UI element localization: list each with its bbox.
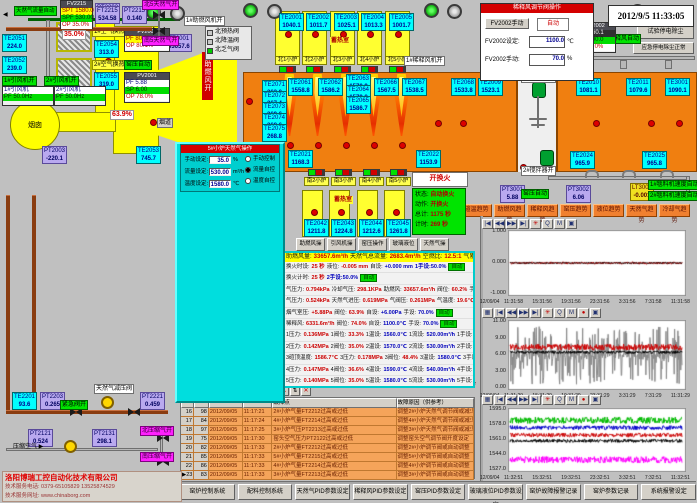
instrument-value: 1079.6 [628,87,649,95]
trend-button[interactable]: 天然气趋势 [626,204,657,217]
sensor-dot [460,120,467,127]
popup-title: 稀释风调节阀操作 [481,4,593,13]
instrument-value: 1081.1 [578,87,599,95]
instrument-tag: PT2121 [30,431,51,437]
stirrer-1-blade [529,118,547,120]
xtick: 3:31:56 [619,299,636,305]
instrument-readout: TE2075268.8 [262,124,287,142]
instrument-readout: TE20611558.8 [288,78,313,96]
chart-toolbar-icon[interactable]: ▦ [482,395,493,405]
ytick: 3.00 [480,368,506,374]
instrument-value: 5.88 [502,194,523,202]
trend-button[interactable]: 冷却气趋势 [659,204,690,217]
ytick: 1561.0 [478,436,506,442]
sensor-dot [343,142,350,149]
led-green [336,170,342,175]
operation-button[interactable]: 窑压操作 [358,238,387,251]
process-label: 紧急阀开 [60,400,88,410]
instrument-tag: TE2075 [264,126,285,132]
trend-button[interactable]: 助燃风趋势 [494,204,525,217]
temperature-trend-chart [508,408,686,472]
instrument-tag: TE2025 [644,153,665,159]
sensor-dot [246,98,253,105]
process-label: 63.9% [110,110,134,120]
alarm-row[interactable]: 21 85 2012/09/05 11:17:33 5#小炉气量FT2215过高… [181,453,474,462]
loop-fv-panel: FV2215 SPT 1580.0 SPF 530.00 OP 35.0% [60,0,93,29]
chart-toolbar-icon[interactable]: M [566,395,577,405]
sensor-dot [393,209,400,216]
temp-set-input[interactable]: 1580.0 [209,180,231,188]
pipe-nozzle [665,60,672,69]
instrument-value: 965.9 [572,160,593,168]
pipe-hanger [585,170,599,178]
instrument-tag: TE2004 [363,15,384,21]
legend-label: 北预热阀 [215,28,239,37]
burner-label: 北1小炉 [275,56,300,65]
company-web[interactable]: 技术服务网址: www.chinaborg.com [5,492,179,501]
alarm-row[interactable]: 17 84 2012/09/05 11:17:24 4#小炉气量FT2214过高… [181,417,474,426]
flow-set-input[interactable]: 530.00 [209,168,231,176]
ytick: 0.00 [480,384,506,390]
process-label: 压缩空气 ▶ [12,443,44,451]
section-title: 5#小炉天然气操作 [181,145,279,153]
instrument-tag: TE3001 [667,80,688,86]
fault-reason: 调整3#小炉天然气调节阀或减少量设定 [397,426,474,435]
instrument-tag: TE2053 [138,148,159,154]
status-value: 开换火 [430,202,448,208]
legend-item: 北预热阀 [207,28,250,37]
fv2002-man-input[interactable]: 70.0 [529,54,565,66]
instrument-value: 0.459 [142,401,163,409]
xtick: 11:31:29 [671,393,690,399]
fault-point-header: 故障点 [272,398,396,408]
fv2002-mode-value: 自动 [537,18,569,31]
ytick: 6.00 [480,351,506,357]
status-row: 状态: 自动换火 [415,190,463,200]
status-row: 总计: 1175 秒 [415,210,463,220]
fault-reason: 调整2#小炉调节阀或自动调整 [397,444,474,453]
instrument-readout: TE2052239.0 [2,56,27,74]
pipe-hanger [660,170,674,178]
instrument-tag: TE2064 [348,87,369,93]
ytick: 11.00 [480,318,506,324]
alarm-row[interactable]: 19 75 2012/09/05 11:17:30 窑头空气压力PT2122过高… [181,435,474,444]
instrument-tag: TE2043 [333,221,354,227]
burner-status-leds [390,169,407,176]
ytick: 1527.0 [478,466,506,472]
gas-bottom-pipe [6,410,168,414]
instrument-value: 1558.8 [290,87,311,95]
fv2002-set-input[interactable]: 1100.0 [529,36,565,48]
instrument-value: 6.06 [568,194,589,202]
instrument-value: -220.1 [44,155,65,163]
chart-toolbar-icon[interactable]: ▶▶ [518,395,529,405]
fan-icon [243,3,258,18]
instrument-readout: PT2003-220.1 [42,146,67,164]
instrument-tag: TE2003 [336,15,357,21]
nav-button[interactable]: 系统报警设定 [641,484,696,500]
gas-loop: 天然气流量自动 FV2215 SPT 1580.0 SPF 530.00 OP … [0,0,178,43]
parameter-rows: 换火时设:25 秒液位:-0.005 mm自设:+0.000 mm1手设:50.… [285,262,473,387]
sensor-dot [285,31,292,38]
company-info: 洛阳博瑞工控自动化技术有限公司 技术服务电话: 0379-65105829 13… [2,471,182,502]
instrument-readout: PT2131298.1 [92,429,117,447]
fault-point: 4#小炉气量FT2214过高或过低 [272,462,396,471]
instrument-readout: TE30011090.1 [665,78,690,96]
led-red [287,67,293,72]
alarm-row[interactable]: ▶23 83 2012/09/05 11:17:33 3#小炉气量FT2213过… [181,471,474,480]
fault-point: 3#小炉气量FT2213过高或过低 [272,471,396,480]
fault-point: 3#小炉气压PT2213过高或过低 [272,426,396,435]
sensor-dot [311,209,318,216]
pipe-nozzle [620,60,627,69]
pipe-hanger [622,170,636,178]
instrument-readout: TE20011040.1 [279,13,304,31]
burner-north: 北3小炉 [330,56,355,73]
process-label: 蓄热室 [333,196,353,204]
instrument-tag: TE2024 [572,153,593,159]
loop-north-valve-label: 北5天然气开 [142,0,179,10]
flow-unit: m³/h [233,168,244,176]
burner-status-leds [335,169,352,176]
chart-toolbar-icon[interactable]: Q [554,395,565,405]
process-label: 窑压自动 [521,189,549,199]
fv2002-man-label: FV2002手动: [485,56,520,65]
trend-button[interactable]: 稀释风趋势 [527,204,558,217]
fv2002-man-unit: % [567,56,572,62]
flow-set-label: 流量设定: [182,168,208,176]
chart1-date: 12/09/04 [480,299,499,305]
instrument-readout: TE20031025.1 [334,13,359,31]
nav-button[interactable]: 窑炉参数记录 [584,484,639,500]
nav-button[interactable]: 玻璃液位PID参数设定 [468,484,523,500]
fv2002-manual-button[interactable]: FV2002手动 [485,18,529,29]
manual-set-label: 手动设定: [182,156,208,164]
nav-button[interactable]: 窑压PID参数设定 [411,484,466,500]
chart-toolbar-icon[interactable]: |◀ [494,395,505,405]
legend-swatch [207,39,213,45]
sensor-dot [367,31,374,38]
chart-toolbar-icon[interactable]: ▣ [590,395,601,405]
chart-toolbar-icon[interactable]: ▣ [590,308,601,318]
xtick: 11:31:58 [504,299,523,305]
xtick: 3:32:51 [619,475,636,481]
ytick: 1578.0 [478,421,506,427]
xtick: 15:32:51 [532,475,551,481]
burner-south: 南5小炉 [386,169,411,186]
chart-toolbar-icon[interactable]: ✳ [542,395,553,405]
trend-button[interactable]: 液位趋势 [593,204,624,217]
instrument-tag: PT2131 [94,431,115,437]
fault-reason: 调整4#小炉调节阀或自动调整 [397,462,474,471]
led-red [369,67,375,72]
led-green [280,67,286,72]
instrument-tag: TE2021 [290,152,311,158]
led-green [391,170,397,175]
instrument-readout: TE20021011.7 [306,13,331,31]
burner-status-leds [334,66,351,73]
chart-toolbar-icon[interactable]: M [566,308,577,318]
fv2002-set-unit: ℃ [567,38,574,45]
led-red [371,170,377,175]
ytick: 1595.0 [478,406,506,412]
fv2002-set-label: FV2002设定: [485,38,520,47]
instrument-tag: TE2061 [290,80,311,86]
process-label: 1#助燃风机开 [184,16,225,26]
ytick: 0.000 [480,259,506,265]
instrument-value: 1533.8 [453,87,474,95]
sensor-dot [338,209,345,216]
sensor-dot [371,142,378,149]
sensor-dot [150,119,157,126]
status-value: 1175 秒 [430,212,451,218]
parameter-panel: 助燃风量:33657.6m³/h天然气总流量:2683.4m³/h空燃比:12.… [283,251,475,388]
xtick: 11:32:51 [504,475,523,481]
burner-south: 南4小炉 [359,169,384,186]
instrument-value: 745.7 [138,155,159,163]
alarm-row[interactable]: 22 86 2012/09/05 11:17:33 4#小炉气量FT2214过高… [181,462,474,471]
operation-button[interactable]: 助燃风操作 [296,238,325,251]
instrument-tag: TE2045 [388,221,409,227]
temp-unit: ℃ [233,180,239,188]
led-red [343,170,349,175]
instrument-readout: TE20431224.8 [331,219,356,237]
nav-button[interactable]: 天然气PID参数设定 [295,484,350,500]
process-label: 2#搅拌器开 [521,166,556,176]
fault-point: 4#小炉气量FT2214过高或过低 [272,417,396,426]
instrument-readout: TE2024965.9 [570,151,595,169]
status-row: 动作: 开换火 [415,200,463,210]
led-red [316,170,322,175]
burner-south: 南3小炉 [331,169,356,186]
burner-north: 北4小炉 [357,56,382,73]
instrument-value: 1011.7 [308,22,329,30]
burner-label: 南5小炉 [386,177,411,186]
instrument-value: 1538.5 [404,87,425,95]
chart1-xaxis: 11:31:5815:31:5619:31:5623:31:563:31:567… [504,299,690,305]
alarm-row[interactable]: 16 98 2012/09/05 11:17:21 2#小炉气量FT2212过高… [181,408,474,417]
instrument-readout: TE20441212.6 [359,219,384,237]
fault-reason: 调整3#小炉调节阀或自动调整 [397,471,474,480]
nav-button[interactable]: 窑炉故障报警记录 [526,484,581,500]
instrument-readout: TE20111079.6 [626,78,651,96]
instrument-value: 1211.8 [306,228,327,236]
burner-status-leds [361,66,378,73]
chart-toolbar-icon[interactable]: Q [542,219,553,229]
chart-toolbar-icon[interactable]: ▦ [482,308,493,318]
sensor-dot [366,209,373,216]
led-red [342,67,348,72]
burner-status-leds [279,66,296,73]
instrument-value: 1523.1 [480,87,501,95]
instrument-tag: TE2022 [418,152,439,158]
process-label: 1#稀释风机开 [404,56,445,66]
chart-toolbar-icon[interactable]: ▶▶ [506,219,517,229]
radio-flow-control[interactable]: 流量自控 [245,166,275,174]
status-value: 自动换火 [430,192,454,198]
process-label: 2#引风机开 [44,76,79,86]
chart-toolbar-icon[interactable]: ▶▶ [518,308,529,318]
operation-button[interactable]: 天然气操作 [420,238,449,251]
xtick: 7:31:58 [645,299,662,305]
pressure-reducing-valve [101,396,114,409]
instrument-readout: PT30026.06 [566,185,591,203]
fault-point: 2#小炉气量FT2212过高或过低 [272,408,396,417]
instrument-tag: TE2072 [264,93,285,99]
chart-toolbar-icon[interactable]: M [554,219,565,229]
instrument-readout: TE20041013.3 [361,13,386,31]
status-key: 动作: [415,202,429,208]
fire-change-status-panel: 状态: 自动换火动作: 开换火总计: 1175 秒计时: 269 秒 [412,188,466,235]
ytick: 1.000 [480,228,506,234]
instrument-tag: TE2073 [264,104,285,110]
nav-button[interactable]: 配料控制系统 [238,484,293,500]
led-green [364,170,370,175]
radio-manual-control[interactable]: 手动控制 [245,155,275,163]
instrument-value: 1025.1 [336,22,357,30]
instrument-readout: TE20051001.7 [389,13,414,31]
xtick: 7:31:29 [645,393,662,399]
ytick: 9.00 [480,335,506,341]
fan2-drive: 2#引风机 PF 50.0Hz [54,86,106,106]
burner-label: 北3小炉 [330,56,355,65]
instrument-readout: TE2053745.7 [136,146,161,164]
manual-set-input[interactable]: 35.0 [209,156,231,164]
led-green [390,67,396,72]
burner-label: 南2小炉 [304,177,329,186]
test-esp-button[interactable]: 试验停电除尘 [637,26,694,39]
chart-toolbar-icon[interactable]: ◀◀ [506,308,517,318]
led-green [309,170,315,175]
instrument-tag: TE2002 [308,15,329,21]
chart1-yaxis: 1.0000.000-1.000 [480,228,506,296]
radio-temp-control[interactable]: 温度自控 [245,177,275,185]
alarm-row[interactable]: 20 82 2012/09/05 11:17:33 2#小炉气量FT2212过高… [181,444,474,453]
instrument-value: 1168.3 [290,159,311,167]
fan-icon [447,4,462,19]
instrument-tag: TE2005 [391,15,412,21]
instrument-tag: TE2065 [348,98,369,104]
xtick: 19:31:56 [561,299,580,305]
legend-item: 北乏气阀 [207,46,250,55]
loop-valve-pct: 35.0% [62,30,86,40]
burner-status-leds [389,66,406,73]
chart3-yaxis: 1595.01578.01561.01544.01527.0 [478,406,506,472]
status-value: 269 秒 [430,222,448,228]
gas-main-pipe-2 [32,195,36,412]
operation-button[interactable]: 玻璃液位操作 [389,238,418,251]
company-tel: 技术服务电话: 0379-65105829 13525874529 [5,483,179,492]
process-label: 北压缩气开 [140,426,174,436]
chart-toolbar-icon[interactable]: |◀ [494,308,505,318]
burner-north: 北1小炉 [275,56,300,73]
instrument-value: 965.8 [644,160,665,168]
chart-toolbar-icon[interactable]: ✳ [530,219,541,229]
level-trend-chart [508,230,686,296]
instrument-readout: TE2025965.8 [642,151,667,169]
chart-toolbar-icon[interactable]: ◀◀ [506,395,517,405]
chart-toolbar-icon[interactable]: ▶| [518,219,529,229]
instrument-readout: TE220193.6 [12,392,37,410]
fault-reason-header: 故障原因（供参考） [397,398,474,408]
sensor-dot [287,142,294,149]
sensor-dot [435,120,442,127]
instrument-tag: TE2044 [361,221,382,227]
burner-label: 南4小炉 [359,177,384,186]
trend-button[interactable]: 窑压趋势 [560,204,591,217]
fault-reason: 调整窑头空气调节阀开度设定 [397,435,474,444]
instrument-readout: PT22210.459 [140,392,165,410]
chart-toolbar-icon[interactable]: Q [554,308,565,318]
process-label: 1#毯料机速度自动 [648,180,697,190]
status-row: 计时: 269 秒 [415,220,463,230]
instrument-value: 1153.9 [418,159,439,167]
instrument-value: 1261.8 [388,228,409,236]
instrument-value: 1013.3 [363,22,384,30]
sensor-dot [395,31,402,38]
burner-status-leds [363,169,380,176]
fault-reason: 调整4#小炉天然气调节阀或减少量设定 [397,417,474,426]
instrument-readout: TE20421211.8 [304,219,329,237]
esp-status-button[interactable]: 应急停电除尘正常 [633,42,694,54]
process-label: 2#毯料机速度自动 [648,191,697,201]
stirrer-1-blade [531,124,545,126]
chart-toolbar-icon[interactable]: ▶| [530,395,541,405]
instrument-value: 1224.8 [333,228,354,236]
status-key: 总计: [415,212,429,218]
chart-toolbar-icon[interactable]: ✳ [542,308,553,318]
nav-button[interactable]: 稀释风PID参数设定 [353,484,408,500]
instrument-readout: TE20671538.5 [402,78,427,96]
instrument-tag: TE2074 [264,115,285,121]
burner-south: 南2小炉 [304,169,329,186]
instrument-readout: TE20661567.5 [374,78,399,96]
manual-unit: % [233,156,238,164]
burner-gas-section: 5#小炉天然气操作 手动设定: 35.0 % 流量设定: 530.00 m³/h… [180,144,280,192]
chart-toolbar-icon[interactable]: ▶| [530,308,541,318]
operation-button[interactable]: 引风机操作 [327,238,356,251]
burner-label: 北4小炉 [357,56,382,65]
totals-strip: 助燃风量:33657.6m³/h天然气总流量:2683.4m³/h空燃比:12.… [285,253,473,262]
chart-toolbar-icon[interactable]: ● [578,308,589,318]
loop-ft: FT2215534.58 [95,6,120,24]
sensor-dot [593,120,600,127]
burner-status-leds [306,66,323,73]
sensor-dot [648,120,655,127]
burner-label: 北2小炉 [302,56,327,65]
chart-toolbar-icon[interactable]: ● [578,395,589,405]
legend-label: 北乏气阀 [215,46,239,55]
chimney-label: 烟囱 [28,120,42,130]
chart-toolbar-icon[interactable]: ▣ [566,219,577,229]
fan1-drive: 1#引风机 PF 50.0Hz [2,86,54,106]
legend-swatch [207,30,213,36]
instrument-value: 1586.2 [320,87,341,95]
instrument-tag: TE2062 [320,80,341,86]
stirrer-2-motor [540,150,554,166]
legend-item: 北降温阀 [207,37,250,46]
instrument-tag: TE2063 [348,76,369,82]
instrument-value: 298.1 [94,438,115,446]
process-label: 1#引风机开 [2,76,37,86]
alarm-row[interactable]: 18 97 2012/09/05 11:17:25 3#小炉气压PT2213过高… [181,426,474,435]
instrument-value: 1001.7 [391,22,412,30]
instrument-tag: TE2201 [14,394,35,400]
legend-label: 北降温阀 [215,37,239,46]
nav-button[interactable]: 窑炉控制系统 [180,484,235,500]
process-label: 烟道 [157,118,173,128]
led-green [362,67,368,72]
